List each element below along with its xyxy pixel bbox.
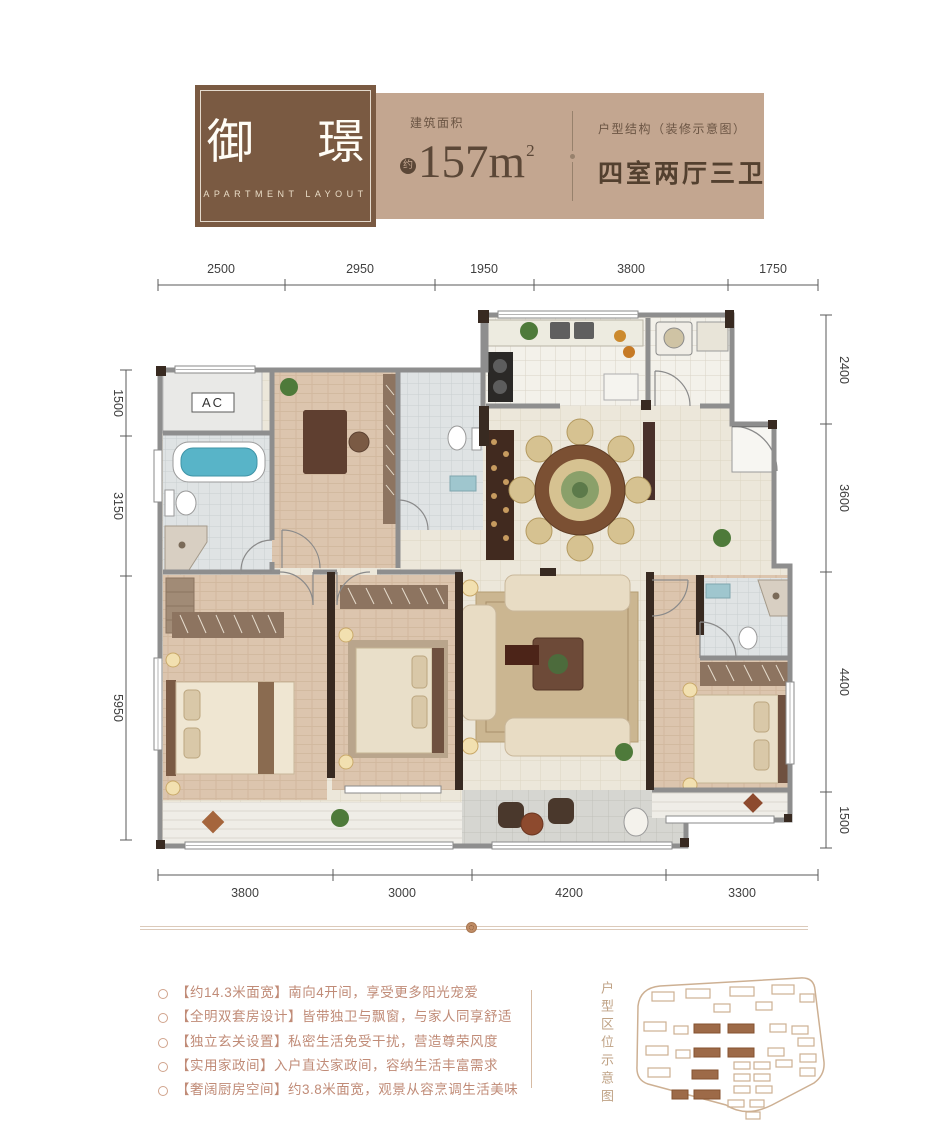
bed-runner xyxy=(258,682,274,774)
area-block: 建筑面积 约 157m 2 xyxy=(410,114,535,183)
area-number: 157m xyxy=(418,141,525,183)
bedroom-3-suite xyxy=(652,575,790,792)
ac-platform: AC xyxy=(163,372,262,433)
area-value: 约 157m 2 xyxy=(400,141,535,183)
desk-chair xyxy=(349,432,369,452)
bullet-icon xyxy=(158,989,168,999)
svg-text:3150: 3150 xyxy=(111,492,125,520)
round-dining-table xyxy=(509,419,651,561)
sofa xyxy=(462,605,496,720)
brand-plaque-inner: 御 璟 APARTMENT LAYOUT xyxy=(200,90,371,222)
sitemap-label: 户型区位示意图 xyxy=(600,981,613,1107)
structure-block: 户型结构（装修示意图） 四室两厅三卫 xyxy=(598,120,766,190)
bedroom3-balcony xyxy=(652,790,790,818)
svg-text:1750: 1750 xyxy=(759,262,787,276)
svg-text:1950: 1950 xyxy=(470,262,498,276)
brand-plaque: 御 璟 APARTMENT LAYOUT xyxy=(195,85,376,227)
toilet xyxy=(176,491,196,515)
plant-icon xyxy=(520,322,538,340)
bullet-icon xyxy=(158,1086,168,1096)
structure-value: 四室两厅三卫 xyxy=(598,154,766,190)
svg-text:2500: 2500 xyxy=(207,262,235,276)
bathroom-2 xyxy=(398,372,483,530)
approx-badge: 约 xyxy=(400,158,416,174)
master-balcony xyxy=(163,802,480,844)
header-divider xyxy=(572,111,573,201)
living-room xyxy=(462,575,638,761)
side-table xyxy=(521,813,543,835)
wardrobe xyxy=(340,585,448,609)
plant-icon xyxy=(713,529,731,547)
svg-text:3600: 3600 xyxy=(837,484,851,512)
plant-icon xyxy=(280,378,298,396)
list-item: 【约14.3米面宽】南向4开间，享受更多阳光宠爱 xyxy=(158,986,518,1001)
sofa xyxy=(505,575,630,611)
chair xyxy=(498,802,524,828)
structure-label: 户型结构（装修示意图） xyxy=(598,120,766,137)
header-info-panel: 建筑面积 约 157m 2 户型结构（装修示意图） 四室两厅三卫 xyxy=(376,93,764,219)
lamp-icon xyxy=(166,653,180,667)
svg-text:3800: 3800 xyxy=(617,262,645,276)
footer-divider xyxy=(531,990,532,1088)
svg-text:1500: 1500 xyxy=(111,389,125,417)
svg-text:3000: 3000 xyxy=(388,886,416,900)
bed-headboard xyxy=(432,648,444,753)
lamp-icon xyxy=(166,781,180,795)
svg-text:2950: 2950 xyxy=(346,262,374,276)
site-boundary xyxy=(637,978,824,1112)
svg-text:4200: 4200 xyxy=(555,886,583,900)
svg-text:5950: 5950 xyxy=(111,694,125,722)
svg-text:1500: 1500 xyxy=(837,806,851,834)
fridge xyxy=(604,374,638,400)
tv-cabinet xyxy=(505,645,539,665)
sink xyxy=(450,476,476,491)
kitchen xyxy=(486,318,645,406)
chair xyxy=(548,798,574,824)
bullet-icon xyxy=(158,1038,168,1048)
project-title: 御 璟 xyxy=(181,120,391,167)
entry-porch xyxy=(732,424,777,472)
feature-list: 【约14.3米面宽】南向4开间，享受更多阳光宠爱 【全明双套房设计】皆带独卫与飘… xyxy=(158,986,518,1108)
svg-text:2400: 2400 xyxy=(837,356,851,384)
study-room xyxy=(272,372,398,568)
svg-text:3300: 3300 xyxy=(728,886,756,900)
wardrobe xyxy=(172,612,284,638)
bathroom-1 xyxy=(163,433,272,572)
study-wardrobe xyxy=(383,374,397,524)
list-item: 【独立玄关设置】私密生活免受干扰，营造尊荣风度 xyxy=(158,1035,518,1050)
area-label: 建筑面积 xyxy=(410,114,535,131)
svg-text:4400: 4400 xyxy=(837,668,851,696)
bed-headboard xyxy=(166,680,176,776)
ac-label: AC xyxy=(202,395,224,410)
divider-ornament-icon xyxy=(466,922,477,933)
project-subtitle: APARTMENT LAYOUT xyxy=(203,189,367,199)
floor-plan: AC xyxy=(0,240,936,920)
master-bedroom xyxy=(163,575,327,800)
sink xyxy=(706,584,730,598)
svg-text:3800: 3800 xyxy=(231,886,259,900)
lamp-icon xyxy=(462,580,478,596)
toilet xyxy=(448,426,466,450)
bathtub xyxy=(181,448,257,476)
area-superscript: 2 xyxy=(526,141,535,161)
site-location-map xyxy=(622,972,862,1126)
sink xyxy=(550,322,570,339)
divider-dot-icon xyxy=(570,154,575,159)
plant-icon xyxy=(331,809,349,827)
lamp-icon xyxy=(339,628,353,642)
basin xyxy=(624,808,648,836)
plant-icon xyxy=(615,743,633,761)
laundry-room xyxy=(648,318,730,406)
bullet-icon xyxy=(158,1062,168,1072)
bedroom-2 xyxy=(332,575,455,790)
list-item: 【实用家政间】入户直达家政间，容纳生活丰富需求 xyxy=(158,1059,518,1074)
lamp-icon xyxy=(683,683,697,697)
sofa xyxy=(505,718,630,756)
list-item: 【全明双套房设计】皆带独卫与飘窗，与家人同享舒适 xyxy=(158,1010,518,1025)
lamp-icon xyxy=(462,738,478,754)
bullet-icon xyxy=(158,1013,168,1023)
lamp-icon xyxy=(339,755,353,769)
toilet xyxy=(739,627,757,649)
list-item: 【奢阔厨房空间】约3.8米面宽，观景从容烹调生活美味 xyxy=(158,1083,518,1098)
